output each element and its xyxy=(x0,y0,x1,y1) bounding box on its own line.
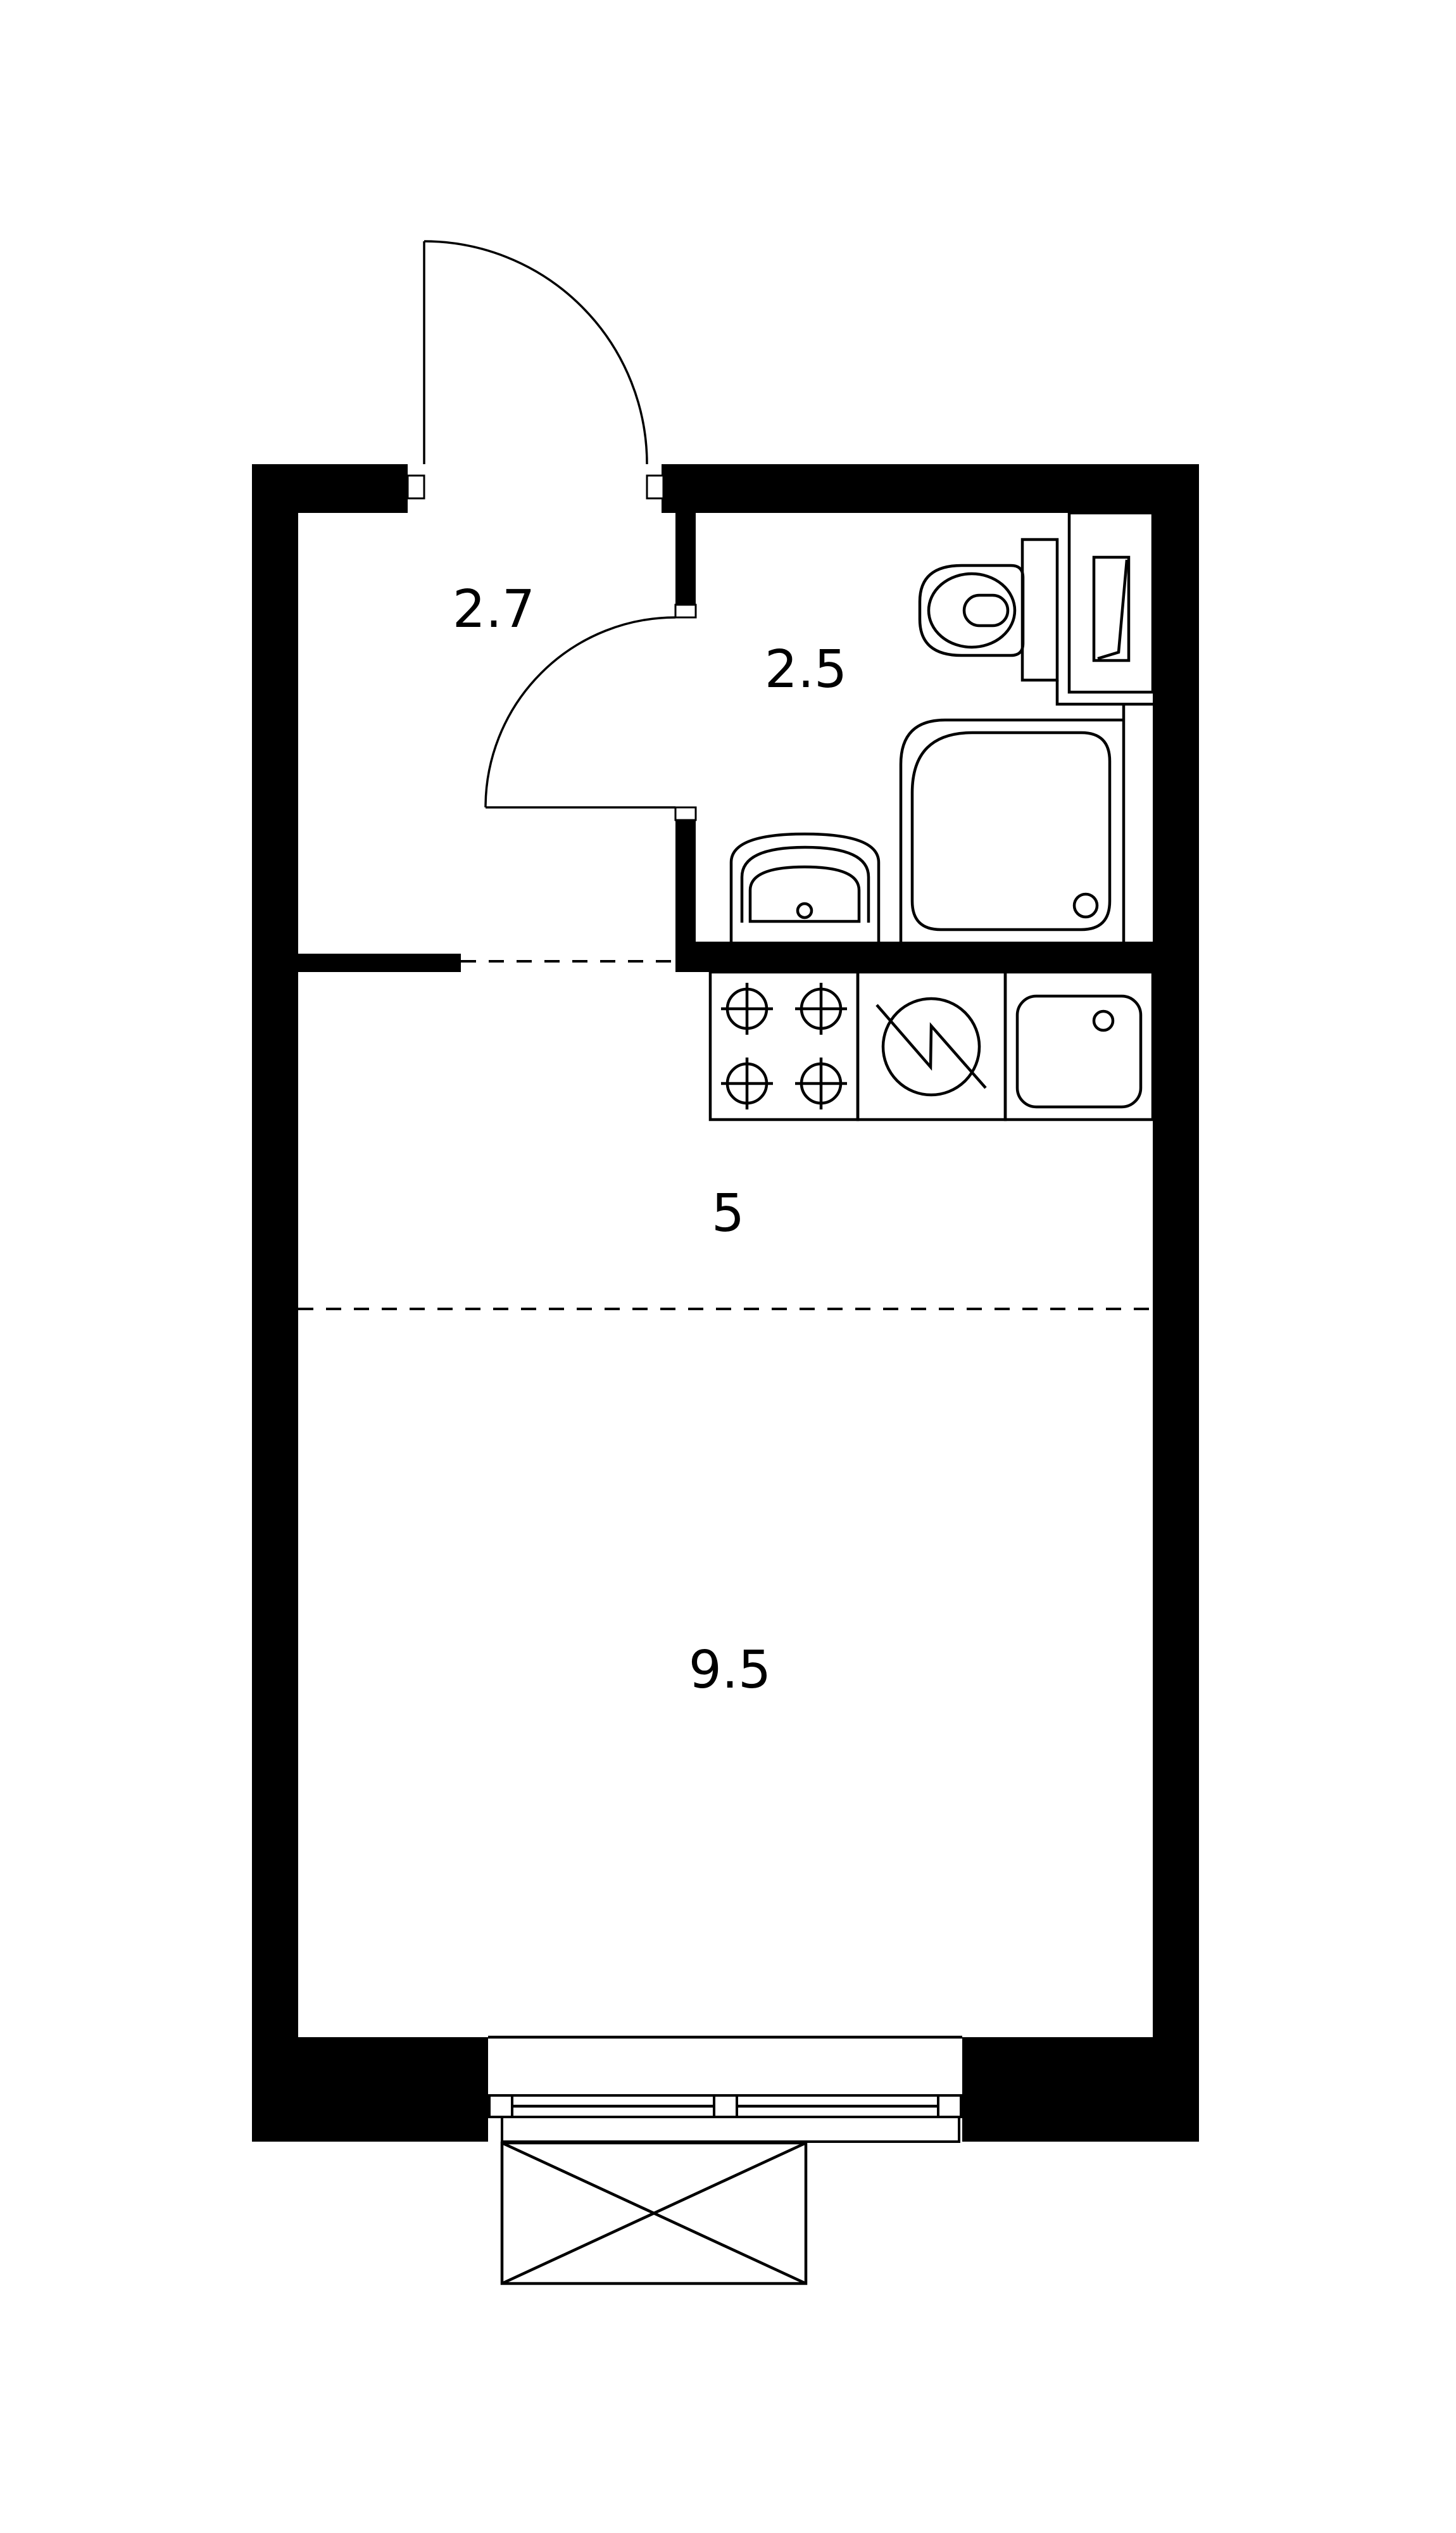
kitchen-sink-icon xyxy=(877,999,986,1095)
shower-drain xyxy=(1074,894,1097,917)
window-mullion-center xyxy=(714,2095,737,2117)
utility-cabinet-icon xyxy=(1057,513,1153,942)
washbasin-rim xyxy=(742,847,869,923)
burner xyxy=(795,983,847,1035)
washbasin-drain xyxy=(798,904,812,918)
wall-hall-stub xyxy=(298,954,461,972)
entry-door-swing-arc xyxy=(424,241,647,464)
window-icon xyxy=(488,2037,962,2142)
burner xyxy=(721,1058,773,1109)
shower-enclosure-outline xyxy=(901,720,1124,942)
bathroom-door-swing-arc xyxy=(486,617,675,807)
wall-left xyxy=(252,464,298,2142)
partition-bathroom-upper xyxy=(675,513,696,605)
stove-burners-icon xyxy=(721,983,847,1109)
entry-door-icon xyxy=(408,241,663,498)
bathroom-area-label: 2.5 xyxy=(765,640,847,700)
shower-tray-outline xyxy=(912,733,1110,930)
window-mullion-right xyxy=(938,2095,961,2117)
toilet-tank-icon xyxy=(1022,540,1057,680)
balcony-cross xyxy=(502,2143,806,2283)
walls xyxy=(252,464,1199,2142)
wall-bottom-left-segment xyxy=(252,2037,488,2142)
living-room-area-label: 9.5 xyxy=(689,1640,771,1700)
entry-door-jamb-left xyxy=(408,476,424,498)
wall-under-bathroom xyxy=(675,942,1153,972)
burner xyxy=(721,983,773,1035)
kitchen-area-label: 5 xyxy=(712,1184,744,1244)
room-labels: 2.7 2.5 5 9.5 xyxy=(453,579,847,1700)
window-mullion-left xyxy=(489,2095,512,2117)
wall-top-right-segment xyxy=(662,464,1199,513)
cabinet-panel-diagonal xyxy=(1098,560,1127,659)
washing-machine-icon xyxy=(1017,996,1141,1107)
washbasin-pedestal-outline xyxy=(731,834,879,942)
washbasin-bowl xyxy=(750,867,859,921)
entry-door-jamb-right xyxy=(647,476,663,498)
bathroom-door-jamb-upper xyxy=(675,605,696,617)
washbasin-icon xyxy=(731,834,879,942)
washer-detail-circle xyxy=(1094,1011,1113,1030)
window-sill-ledge xyxy=(502,2117,959,2142)
bathroom-door-jamb-lower xyxy=(675,807,696,820)
balcony-icon xyxy=(502,2143,806,2283)
wall-right xyxy=(1153,464,1199,2142)
cabinet-outline xyxy=(1069,513,1153,692)
zone-dividers xyxy=(298,961,1153,1309)
toilet-water-spot xyxy=(964,595,1008,626)
floor-plan-page: 2.7 2.5 5 9.5 xyxy=(0,0,1456,2533)
toilet-icon xyxy=(920,565,1023,655)
hallway-area-label: 2.7 xyxy=(453,579,535,640)
shower-tray-icon xyxy=(901,720,1124,942)
washer-body xyxy=(1017,996,1141,1107)
toilet-bowl-inner xyxy=(929,574,1015,647)
wall-bottom-right-segment xyxy=(962,2037,1199,2142)
burner xyxy=(795,1058,847,1109)
floor-plan-drawing: 2.7 2.5 5 9.5 xyxy=(0,0,1456,2533)
washer-unit-outline xyxy=(1005,972,1153,1120)
